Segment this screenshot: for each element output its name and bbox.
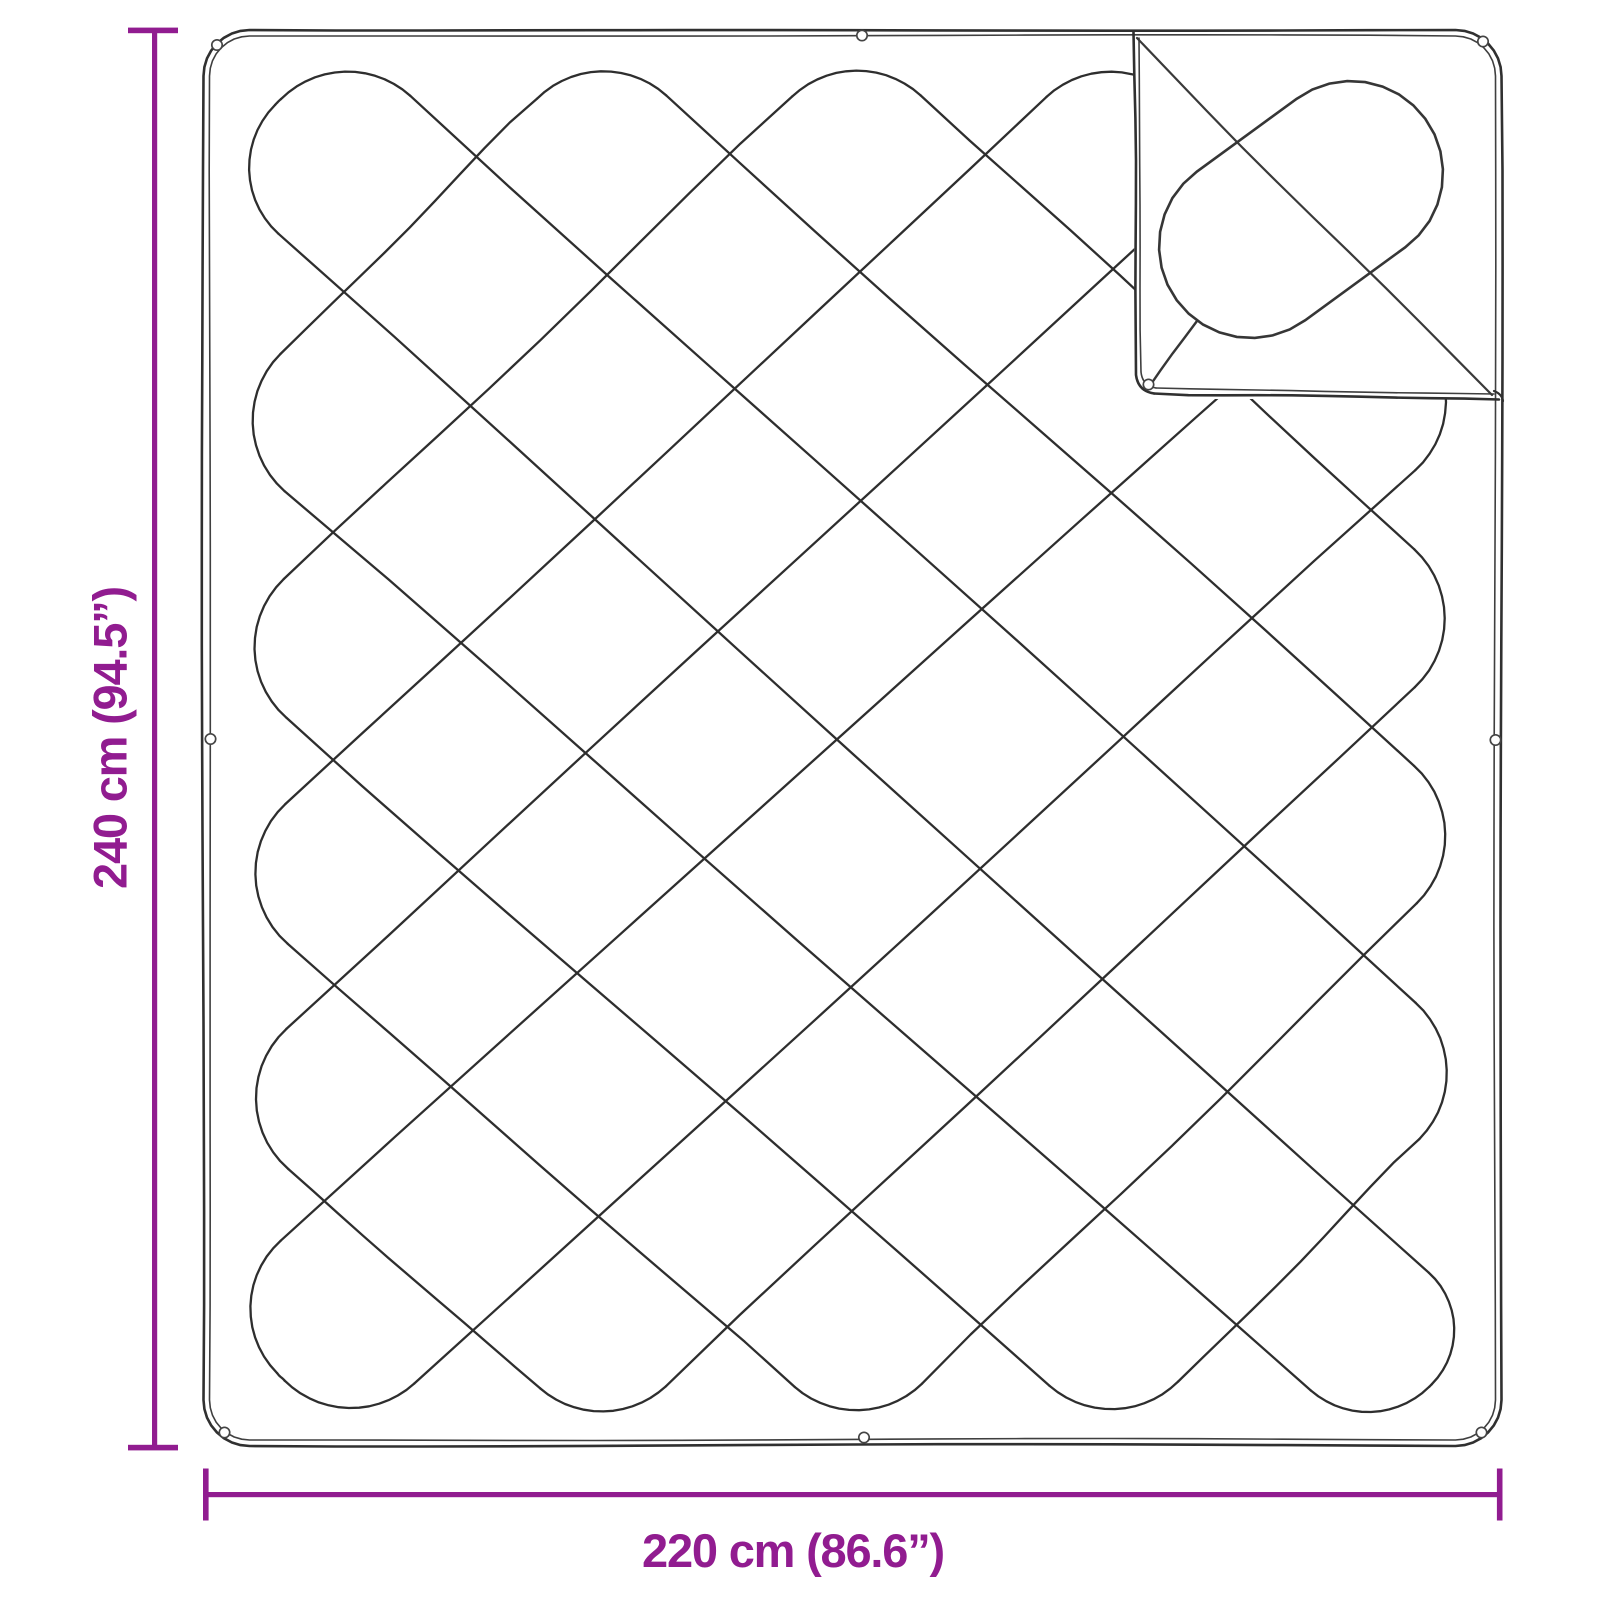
svg-text:240 cm (94.5”): 240 cm (94.5”) (83, 587, 136, 889)
svg-text:220 cm (86.6”): 220 cm (86.6”) (642, 1524, 944, 1577)
